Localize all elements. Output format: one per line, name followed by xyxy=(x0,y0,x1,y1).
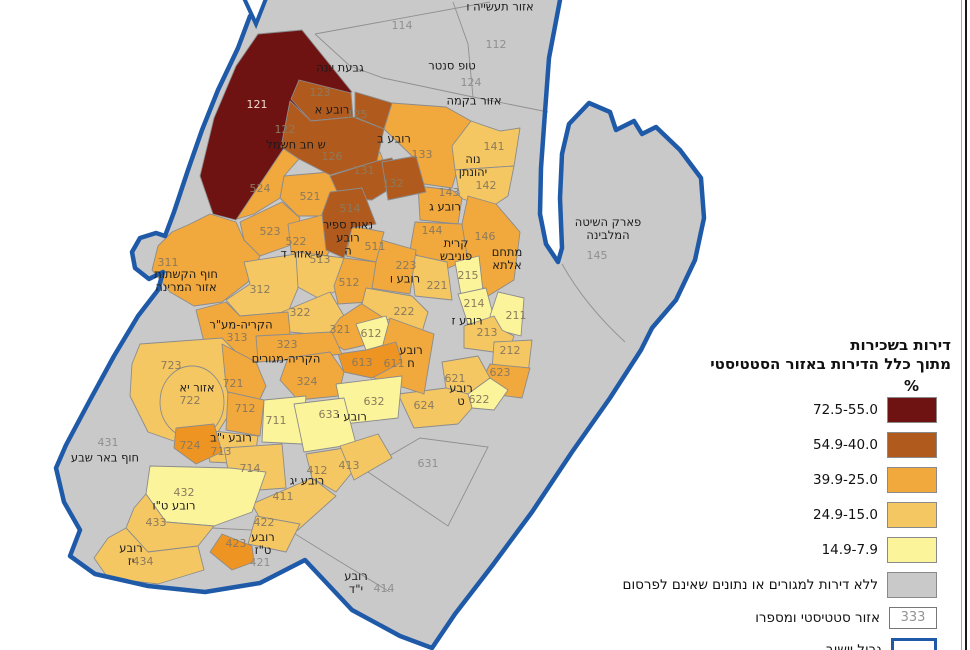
legend-row-stat-area: אזור סטטיסטי ומספרו 333 xyxy=(633,607,953,629)
legend-title: דירות בשכירות מתוך כלל הדירות באזור הסטט… xyxy=(633,336,951,374)
legend-range-label: 72.5-55.0 xyxy=(813,402,878,418)
legend-swatch-gray xyxy=(887,572,937,598)
legend-range-label: 54.9-40.0 xyxy=(813,437,878,453)
legend-stat-area-label: אזור סטטיסטי ומספרו xyxy=(755,610,880,626)
legend-range-label: 24.9-15.0 xyxy=(813,507,878,523)
legend-row-class-2: 54.9-40.0 xyxy=(633,432,953,458)
legend-row-class-4: 24.9-15.0 xyxy=(633,502,953,528)
frame-line-inner xyxy=(965,0,967,650)
legend-row-class-1: 72.5-55.0 xyxy=(633,397,953,423)
legend-stat-area-sample-box: 333 xyxy=(889,607,937,629)
legend-boundary-label: גבול יישוב xyxy=(826,642,882,650)
legend-stat-area-sample: 333 xyxy=(901,610,926,625)
legend-title-line1: דירות בשכירות xyxy=(850,336,951,354)
legend: דירות בשכירות מתוך כלל הדירות באזור הסטט… xyxy=(633,336,953,650)
legend-no-data-label: ללא דירות למגורים או נתונים שאינם לפרסום xyxy=(623,577,879,593)
legend-swatch-brown xyxy=(887,432,937,458)
map-stage: 1211221231251261311321331411421431441461… xyxy=(0,0,970,650)
legend-unit: % xyxy=(633,377,919,395)
legend-row-no-data: ללא דירות למגורים או נתונים שאינם לפרסום xyxy=(633,572,953,598)
legend-boundary-swatch xyxy=(891,638,937,650)
legend-swatch-yellow xyxy=(887,537,937,563)
legend-row-class-5: 14.9-7.9 xyxy=(633,537,953,563)
region-712 xyxy=(226,392,264,436)
frame-line-outer xyxy=(961,0,962,650)
legend-title-line2: מתוך כלל הדירות באזור הסטטיסטי xyxy=(710,355,951,373)
legend-range-label: 39.9-25.0 xyxy=(813,472,878,488)
legend-range-label: 14.9-7.9 xyxy=(822,542,878,558)
legend-swatch-tan xyxy=(887,502,937,528)
legend-row-boundary: גבול יישוב xyxy=(633,638,953,650)
legend-row-class-3: 39.9-25.0 xyxy=(633,467,953,493)
legend-swatch-orange xyxy=(887,467,937,493)
legend-swatch-darkred xyxy=(887,397,937,423)
